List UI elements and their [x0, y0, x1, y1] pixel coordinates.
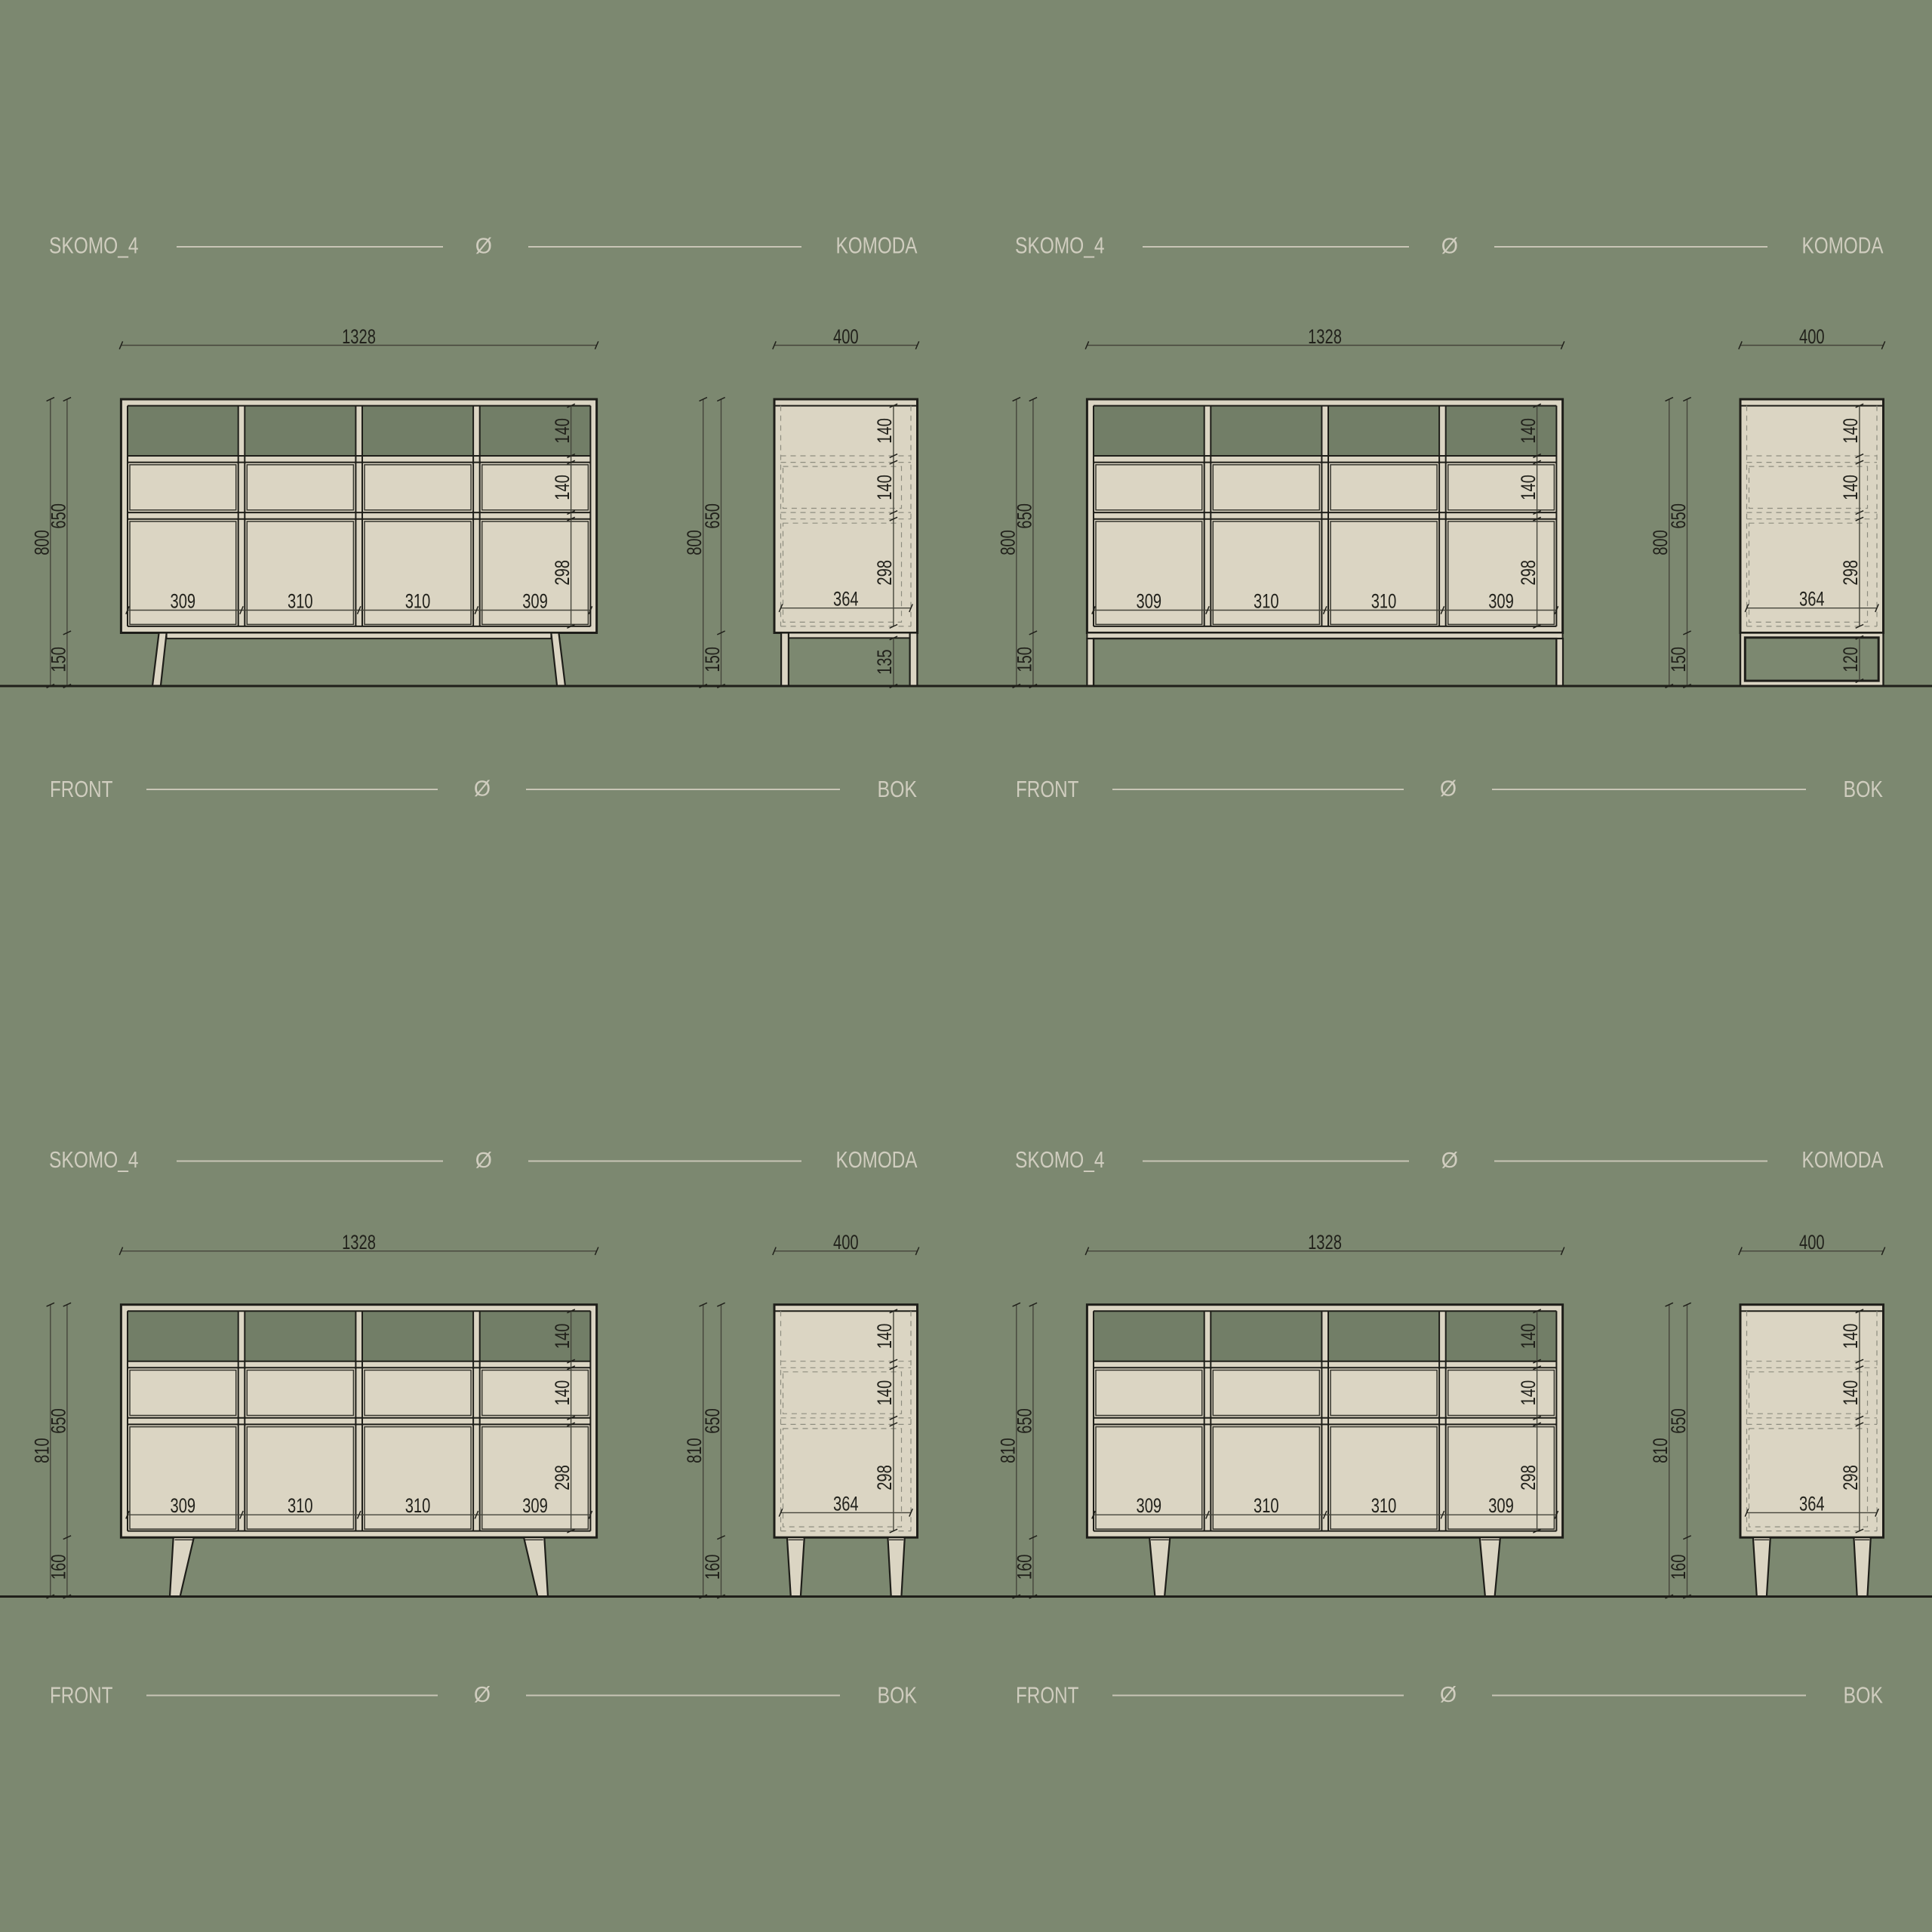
svg-text:650: 650 [1013, 503, 1035, 529]
svg-text:1328: 1328 [1308, 1231, 1342, 1254]
svg-text:Ø: Ø [475, 235, 492, 259]
svg-text:309: 309 [522, 1494, 548, 1517]
svg-text:1328: 1328 [1308, 325, 1342, 348]
svg-text:298: 298 [873, 560, 896, 586]
svg-text:650: 650 [1667, 1408, 1690, 1434]
svg-text:364: 364 [1799, 1492, 1825, 1515]
svg-text:810: 810 [30, 1438, 53, 1463]
svg-text:650: 650 [701, 503, 724, 529]
svg-text:309: 309 [1137, 590, 1162, 613]
svg-text:140: 140 [873, 1324, 896, 1349]
svg-text:140: 140 [1839, 1380, 1862, 1406]
svg-text:140: 140 [1839, 475, 1862, 500]
svg-text:140: 140 [1517, 1380, 1540, 1406]
svg-text:310: 310 [1254, 1494, 1279, 1517]
svg-text:140: 140 [1517, 1324, 1540, 1349]
svg-text:140: 140 [1517, 475, 1540, 500]
svg-text:650: 650 [47, 1408, 69, 1434]
svg-text:160: 160 [1013, 1555, 1035, 1580]
svg-text:140: 140 [551, 475, 574, 500]
svg-text:810: 810 [1649, 1438, 1672, 1463]
svg-text:BOK: BOK [1844, 776, 1884, 802]
svg-text:120: 120 [1839, 647, 1862, 672]
svg-text:298: 298 [551, 560, 574, 586]
svg-text:140: 140 [873, 1380, 896, 1406]
svg-text:650: 650 [1667, 503, 1690, 529]
svg-text:Ø: Ø [474, 777, 491, 801]
svg-text:SKOMO_4: SKOMO_4 [49, 1146, 139, 1173]
svg-text:150: 150 [1013, 647, 1035, 672]
svg-text:310: 310 [405, 590, 431, 613]
svg-text:FRONT: FRONT [1016, 776, 1079, 802]
svg-text:140: 140 [1839, 418, 1862, 444]
svg-text:810: 810 [996, 1438, 1019, 1463]
svg-text:309: 309 [171, 590, 196, 613]
svg-text:650: 650 [1013, 1408, 1035, 1434]
svg-text:800: 800 [1649, 530, 1672, 555]
svg-text:140: 140 [551, 1380, 574, 1406]
svg-text:135: 135 [873, 649, 896, 675]
svg-text:KOMODA: KOMODA [836, 1146, 918, 1173]
svg-text:309: 309 [522, 590, 548, 613]
svg-text:650: 650 [47, 503, 69, 529]
svg-text:SKOMO_4: SKOMO_4 [1015, 1146, 1105, 1173]
svg-text:BOK: BOK [878, 1682, 918, 1709]
svg-text:Ø: Ø [1440, 1683, 1457, 1707]
svg-text:298: 298 [873, 1465, 896, 1491]
svg-text:150: 150 [1667, 647, 1690, 672]
svg-text:Ø: Ø [1441, 235, 1458, 259]
svg-text:298: 298 [551, 1465, 574, 1491]
svg-text:400: 400 [833, 1231, 859, 1254]
svg-text:400: 400 [1799, 325, 1825, 348]
svg-text:298: 298 [1517, 560, 1540, 586]
svg-text:Ø: Ø [475, 1149, 492, 1173]
svg-text:400: 400 [1799, 1231, 1825, 1254]
svg-text:800: 800 [996, 530, 1019, 555]
svg-text:Ø: Ø [1441, 1149, 1458, 1173]
svg-text:150: 150 [701, 647, 724, 672]
svg-text:SKOMO_4: SKOMO_4 [49, 232, 139, 259]
svg-text:160: 160 [47, 1555, 69, 1580]
svg-text:650: 650 [701, 1408, 724, 1434]
svg-text:298: 298 [1517, 1465, 1540, 1491]
svg-text:310: 310 [1371, 1494, 1397, 1517]
svg-text:298: 298 [1839, 560, 1862, 586]
svg-text:140: 140 [873, 418, 896, 444]
svg-text:Ø: Ø [474, 1683, 491, 1707]
svg-text:160: 160 [1667, 1555, 1690, 1580]
svg-text:FRONT: FRONT [50, 776, 113, 802]
svg-text:KOMODA: KOMODA [1802, 1146, 1884, 1173]
svg-text:364: 364 [833, 1492, 859, 1515]
svg-text:150: 150 [47, 647, 69, 672]
svg-text:BOK: BOK [1844, 1682, 1884, 1709]
svg-text:140: 140 [873, 475, 896, 500]
svg-text:298: 298 [1839, 1465, 1862, 1491]
svg-text:310: 310 [1371, 590, 1397, 613]
svg-text:310: 310 [288, 1494, 313, 1517]
svg-text:364: 364 [1799, 588, 1825, 611]
svg-text:310: 310 [288, 590, 313, 613]
svg-text:KOMODA: KOMODA [1802, 232, 1884, 259]
svg-text:309: 309 [171, 1494, 196, 1517]
svg-text:KOMODA: KOMODA [836, 232, 918, 259]
svg-text:364: 364 [833, 588, 859, 611]
svg-text:309: 309 [1137, 1494, 1162, 1517]
svg-text:FRONT: FRONT [1016, 1682, 1079, 1709]
svg-text:BOK: BOK [878, 776, 918, 802]
svg-text:140: 140 [1517, 418, 1540, 444]
svg-text:800: 800 [683, 530, 706, 555]
svg-text:Ø: Ø [1440, 777, 1457, 801]
svg-text:310: 310 [1254, 590, 1279, 613]
svg-text:140: 140 [551, 1324, 574, 1349]
svg-text:140: 140 [1839, 1324, 1862, 1349]
svg-text:400: 400 [833, 325, 859, 348]
svg-text:FRONT: FRONT [50, 1682, 113, 1709]
svg-text:1328: 1328 [342, 1231, 376, 1254]
svg-text:810: 810 [683, 1438, 706, 1463]
svg-text:309: 309 [1488, 590, 1514, 613]
svg-text:309: 309 [1488, 1494, 1514, 1517]
svg-text:1328: 1328 [342, 325, 376, 348]
svg-text:SKOMO_4: SKOMO_4 [1015, 232, 1105, 259]
svg-text:160: 160 [701, 1555, 724, 1580]
svg-text:140: 140 [551, 418, 574, 444]
svg-text:800: 800 [30, 530, 53, 555]
svg-text:310: 310 [405, 1494, 431, 1517]
